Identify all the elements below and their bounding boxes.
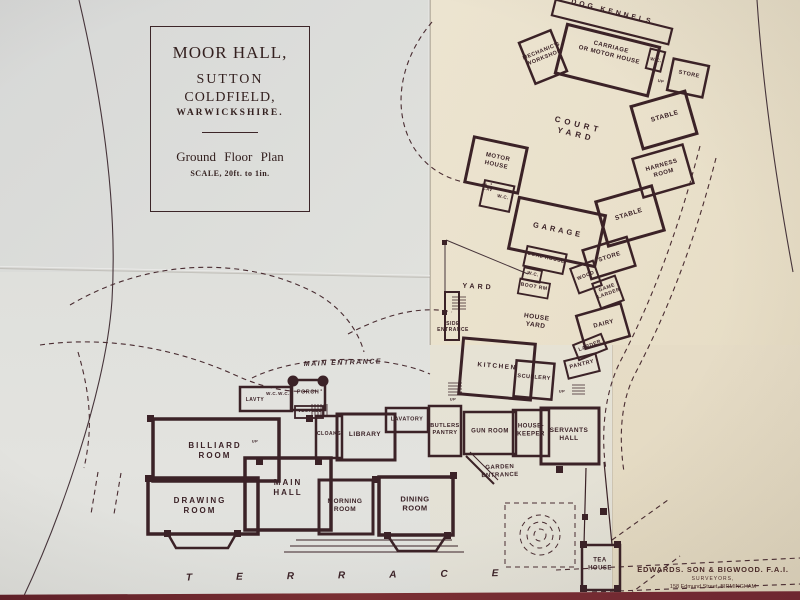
- room-label-coal-house: COAL HOUSE: [527, 251, 566, 266]
- room-label-up-stairs-main: UP: [252, 439, 259, 444]
- room-label-yard: YARD: [462, 283, 494, 293]
- room-label-dog-kennels: DOG KENNELS: [570, 0, 654, 27]
- room-label-up-servants: UP: [559, 389, 566, 394]
- room-label-garden-entrance: GARDEN ENTRANCE: [481, 464, 519, 480]
- room-label-up-kitchen: UP: [450, 397, 457, 402]
- room-label-store-2: STORE: [598, 251, 622, 265]
- room-label-motor-house: MOTOR HOUSE: [483, 152, 510, 172]
- room-label-porch: PORCH: [297, 390, 319, 397]
- room-label-court-yard: COURT YARD: [551, 114, 603, 145]
- room-label-garage: GARAGE: [532, 220, 584, 240]
- room-label-wc-yard: W.C.: [527, 270, 540, 278]
- surveyor-role: SURVEYORS,: [628, 576, 798, 582]
- room-label-boot-room: BOOT RM: [520, 282, 548, 293]
- room-label-stable-1: STABLE: [650, 109, 680, 125]
- room-label-up-top: UP: [657, 78, 664, 84]
- room-label-cloaks: CLOAKS: [317, 431, 341, 437]
- room-label-harness-room: HARNESS ROOM: [645, 158, 681, 181]
- room-label-morning-room: MORNING ROOM: [328, 498, 363, 514]
- room-label-side-entrance: SIDE ENTRANCE: [437, 321, 469, 334]
- room-label-main-hall: MAIN HALL: [273, 478, 302, 498]
- room-labels-layer: DOG KENNELSMECHANIC'S WORKSHOPCARRIAGE O…: [0, 0, 800, 600]
- room-label-dining-room: DINING ROOM: [400, 495, 429, 514]
- surveyor-address: 158 Edmund Street, BIRMINGHAM: [628, 584, 798, 590]
- room-label-lav-small: LAV: [483, 186, 493, 193]
- room-label-carriage-house: CARRIAGE OR MOTOR HOUSE: [578, 37, 643, 67]
- room-label-housekeeper: HOUSE- KEEPER: [517, 424, 545, 439]
- room-label-larder: LARDER: [578, 339, 602, 354]
- room-label-pantry: PANTRY: [569, 359, 595, 372]
- plan-type: Ground Floor Plan: [151, 149, 309, 165]
- room-label-library: LIBRARY: [349, 431, 381, 439]
- plan-subtitle: SUTTON: [151, 72, 309, 88]
- plan-scale: SCALE, 20ft. to 1in.: [151, 169, 309, 178]
- plan-subtitle: COLDFIELD,: [151, 90, 309, 106]
- room-label-dairy: DAIRY: [593, 319, 615, 331]
- room-label-house-yard: HOUSE YARD: [522, 312, 550, 332]
- room-label-mechanics-workshop: MECHANIC'S WORKSHOP: [522, 41, 564, 69]
- room-label-lavty: LAVTY: [246, 397, 265, 403]
- title-block: MOOR HALL, SUTTON COLDFIELD, WARWICKSHIR…: [150, 26, 310, 212]
- room-label-billiard-room: BILLIARD ROOM: [188, 441, 241, 461]
- room-label-wc-top: W.C.: [650, 56, 663, 64]
- title-divider: [202, 132, 258, 133]
- room-label-gun-room: GUN ROOM: [471, 428, 509, 436]
- surveyor-name: EDWARDS. SON & BIGWOOD. F.A.I.: [628, 565, 798, 574]
- room-label-wc-ent-2: W.C.: [278, 391, 290, 397]
- room-label-butlers-pantry: BUTLERS PANTRY: [430, 423, 459, 437]
- room-label-wc-motor: W.C.: [497, 193, 510, 201]
- plan-title: MOOR HALL,: [151, 43, 309, 63]
- plan-county: WARWICKSHIRE.: [151, 108, 309, 118]
- room-label-tea-house: TEA HOUSE: [588, 558, 612, 573]
- room-label-stable-2: STABLE: [614, 207, 644, 224]
- room-label-kitchen: KITCHEN: [477, 361, 517, 373]
- room-label-store-top: STORE: [678, 69, 700, 80]
- room-label-vestibule: VESTBLE: [298, 408, 322, 414]
- surveyor-imprint: EDWARDS. SON & BIGWOOD. F.A.I. SURVEYORS…: [628, 565, 798, 590]
- room-label-game-larder: GAME LARDER: [595, 281, 622, 301]
- floor-plan-photo: DOG KENNELSMECHANIC'S WORKSHOPCARRIAGE O…: [0, 0, 800, 600]
- room-label-main-entrance: MAIN ENTRANCE: [304, 358, 382, 369]
- room-label-drawing-room: DRAWING ROOM: [174, 496, 227, 516]
- room-label-lavatory: LAVATORY: [391, 417, 424, 424]
- room-label-servants-hall: SERVANTS HALL: [550, 427, 589, 443]
- room-label-scullery: SCULLERY: [517, 373, 551, 383]
- room-label-wood: WOOD: [576, 270, 595, 283]
- room-label-wc-ent-1: W.C.: [266, 391, 278, 397]
